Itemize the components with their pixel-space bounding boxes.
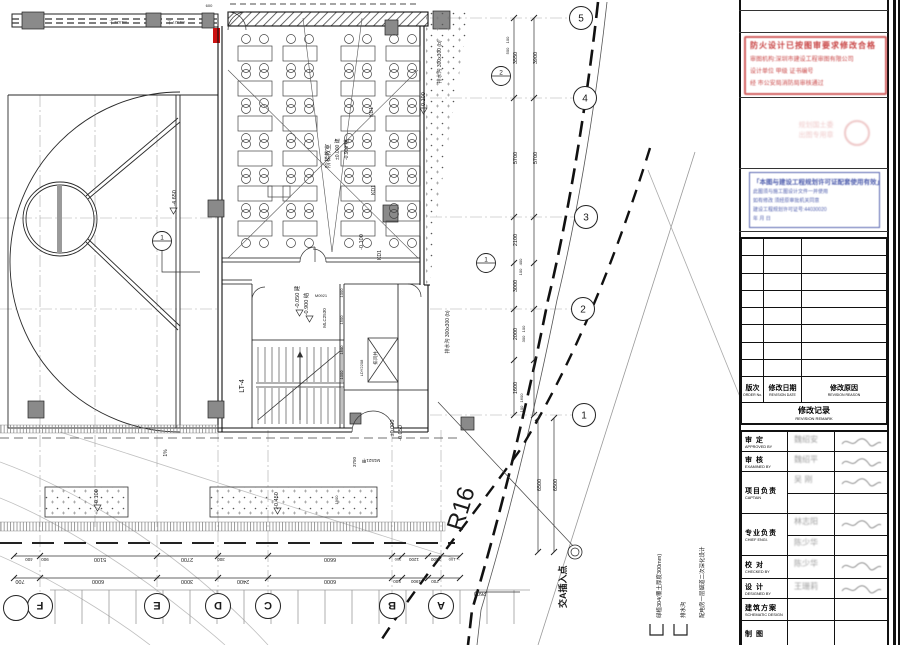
dim-label: MLC2530 [322,308,327,328]
approval-name-cell: 陈少华 [788,556,835,578]
sheet-border-outer [893,0,896,645]
desk [238,186,272,201]
chair [408,70,417,79]
stamp-line: 年 月 日 [753,215,876,222]
approval-role: 审 核EXAMINED BY [742,452,788,471]
role-en: SCHEMATIC DESIGN [745,613,787,617]
dim-label: 6500 [537,479,543,491]
dim-label: 2100 [513,234,519,246]
grid-number: 4 [582,94,588,105]
dim-label: -0.050 建 [293,285,301,308]
dim-label: 700 [431,579,439,584]
dim-label: 1500 [339,315,344,325]
chair [363,35,372,44]
approval-row: 专业负责CHIEF ENGI.林志阳陈少华 [742,514,887,556]
chair [345,239,354,248]
stamp-line: 设计单位 甲级 证书编号 [750,66,881,75]
role-en: CHECKED BY [745,570,787,574]
dim-label: 5700 [513,152,519,164]
role-en: EXAMINED BY [745,465,787,469]
role-en: APPROVED BY [745,445,787,449]
role-cn: 建筑方案 [745,603,787,613]
legend-symbol [674,624,687,635]
desk [386,186,420,201]
dim-label: 排风井 [372,351,379,365]
chair [242,70,251,79]
grid-number: 3 [583,213,589,224]
chair [390,239,399,248]
detail-number: 1 [160,235,164,242]
handwritten-name [788,621,834,623]
dim-label: 2600 [474,590,486,596]
role-cn: 项目负责 [745,486,787,496]
dim-label: 1200 [408,557,419,562]
grid-number: 5 [578,14,584,25]
desk [283,116,317,131]
role-cn: 制 图 [745,629,787,639]
road-name: R16 [442,484,481,534]
dim-label: 100 [521,325,526,332]
dim-label: 1000 [339,370,344,380]
chair [408,239,417,248]
dim-label: 3900 [533,52,539,64]
approval-row: 制 图 [742,621,887,645]
revision-footer: 修改记录 REVISION REMARK [742,403,886,423]
detail-number: 2 [499,70,503,77]
dim-label: KD1 [369,107,375,117]
desk [386,221,420,236]
desk [386,116,420,131]
dim-label: 600 [206,3,213,8]
chair [260,35,269,44]
approval-signature-cell [835,579,887,598]
dim-label: 500 [505,47,510,54]
detail-leader [162,250,200,272]
role-cn: 专业负责 [745,528,787,538]
revision-row [742,256,886,273]
handwritten-name [788,493,834,495]
rev-col3-cn: 修改原因 [830,383,858,393]
chair [345,70,354,79]
dim-label: 100 [518,268,523,275]
chair [363,175,372,184]
architectural-drawing-sheet: { "plan": { "room": { "name": "阶梯教室", "e… [0,0,900,645]
dim-label: 1600 [513,382,519,394]
dim-label: 1600 [519,393,524,403]
dim-label: 300 [394,557,401,562]
faint-seal-stamp: 规划国土委 出图专用章 [748,102,884,164]
revision-empty-rows [742,239,886,377]
approval-name-cell: 魏绍平 [788,452,835,471]
desk [238,221,272,236]
role-cn: 审 定 [745,435,787,445]
desk [386,46,420,61]
approval-name-cell: 吴 刚 [788,472,835,513]
dim-label: 6600 [324,556,336,562]
dim-label: -0.450 [274,492,280,508]
chair [242,35,251,44]
detail-number: 1 [484,257,488,264]
chair [260,140,269,149]
desk [238,81,272,96]
desk [341,81,375,96]
desk [238,151,272,166]
approval-role: 专业负责CHIEF ENGI. [742,514,788,555]
dim-label: 400 [25,557,33,562]
approval-row: 建筑方案SCHEMATIC DESIGN [742,599,887,621]
dim-label: M0921 [315,293,328,298]
chair [363,70,372,79]
chair [408,35,417,44]
role-cn: 审 核 [745,455,787,465]
approval-role: 设 计DESIGNED BY [742,579,788,598]
chair [287,35,296,44]
rev-col2-cn: 修改日期 [769,383,797,393]
chair [287,239,296,248]
chair [408,140,417,149]
approval-role: 建筑方案SCHEMATIC DESIGN [742,599,788,620]
dim-label: M1524 上 [109,20,126,26]
approval-signature-cell [835,599,887,620]
revision-table: 版次 ORDER No. 修改日期 REVISION DATE 修改原因 REV… [740,237,888,425]
chair [408,210,417,219]
legend-label: 配电房一层烟道二次深化设计 [698,546,706,618]
dim-label: 500 [393,579,401,584]
top-wall [12,12,220,43]
chair [287,70,296,79]
chair [408,175,417,184]
dim-label: -0.100 [421,92,427,108]
dim-label: 3000 [513,280,519,292]
dim-label: M1521甲 [362,457,380,463]
dim-label: 1900 [334,495,339,505]
approval-role: 审 定APPROVED BY [742,432,788,451]
rev-col2-en: REVISION DATE [769,393,796,397]
stair-extras [256,338,398,420]
grid-letter: C [264,599,272,611]
approval-name-cell [788,599,835,620]
dim-label: -0.900 结 [302,292,310,315]
handwritten-name: 吴 刚 [788,472,834,485]
dim-label: KD1 [371,185,377,195]
handwritten-name: 王珊莉 [788,579,834,592]
dim-label: 300 [521,335,526,342]
dim-label: 排水沟 300x300 (b) [444,310,451,353]
revision-row [742,360,886,377]
chair [305,70,314,79]
chair [305,175,314,184]
approval-row: 校 对CHECKED BY陈少华 [742,556,887,579]
chair [260,175,269,184]
approval-row: 设 计DESIGNED BY王珊莉 [742,579,887,599]
chair [390,70,399,79]
desk [341,116,375,131]
handwritten-name: 陈少华 [788,535,834,548]
panel-rule-3 [739,97,888,98]
approval-name-cell: 魏绍安 [788,432,835,451]
approval-name-cell: 王珊莉 [788,579,835,598]
dim-label: 2500 [430,557,441,562]
dim-label: 3550 [513,52,519,64]
room-name: 阶梯教室 [324,144,332,168]
legend-symbol [650,624,663,635]
chair [287,105,296,114]
revision-row [742,239,886,256]
dim-label: 3750 [352,456,357,467]
grid-bubble-letter [4,596,29,621]
dim-label: 2400 [237,578,249,584]
handwritten-name: 魏绍平 [788,452,834,465]
dim-label: 6000 [92,578,104,584]
role-cn: 校 对 [745,560,787,570]
revision-header: 版次 ORDER No. 修改日期 REVISION DATE 修改原因 REV… [742,377,886,403]
approval-role: 校 对CHECKED BY [742,556,788,578]
chair [390,35,399,44]
panel-rule-5 [739,231,888,232]
chair [242,105,251,114]
grid-letter: D [214,599,222,611]
dim-label: -0.100 [359,234,365,250]
dim-label: 5100 [94,556,106,562]
room-elev-struct: -0.900 结 [343,139,350,160]
chair [345,210,354,219]
handwritten-name [788,599,834,601]
legend-label: 排水沟 [679,601,687,618]
desk [238,46,272,61]
approval-signature-cell [835,556,887,578]
dim-label: 900 [41,557,49,562]
planning-permit-stamp: 「本图与建设工程规划许可证配套使用有效」 此图须与施工图设计文件一并使用 如有修… [749,172,880,228]
rev-footer-en: REVISION REMARK [795,416,832,421]
insertion-label: 交A插入点 [557,566,568,609]
dim-label: 6000 [324,578,336,584]
panel-rule-1 [739,10,888,11]
grid-number: 1 [581,411,587,422]
dim-label: 2700 [181,556,193,562]
chair [287,175,296,184]
sidewalks-planters [0,425,460,543]
dim-label: 排水沟 300x300 (b) [436,40,443,83]
dim-label: 6500 [553,479,559,491]
chair [345,35,354,44]
chair [390,175,399,184]
approval-signature-cell [835,452,887,471]
desk [283,46,317,61]
approval-signature-cell [835,472,887,513]
approval-name-cell: 林志阳陈少华 [788,514,835,555]
dim-label: 1000 [339,288,344,298]
grid-letter: E [153,599,160,611]
chair [390,105,399,114]
chair [390,140,399,149]
teacher-desk [268,186,290,197]
rev-col1-en: ORDER No. [743,393,762,397]
fence-ticks [50,590,530,624]
elevation-marker [306,316,313,322]
desk [386,81,420,96]
desk [238,116,272,131]
dim-label: 3000 [181,578,193,584]
desk [386,151,420,166]
room-elev-arch: ±0.000 建 [334,138,341,160]
stamp-line: 防火设计已按图审要求修改合格 [750,40,881,51]
dim-label: 400 [518,258,523,265]
stamp-line: 建设工程规划许可证号:44030020 [753,206,876,213]
dim-label: LT-4 [239,379,246,393]
dim-label: 700 [15,578,24,584]
legend-label: 绿植304(覆土厚度300mm) [655,554,663,618]
revision-row [742,274,886,291]
sheet-border-edge [898,0,900,645]
approval-signature-cell [835,621,887,645]
dim-label: 100 [505,36,510,43]
chair [260,239,269,248]
insertion-point: 交A插入点 [557,545,582,608]
dim-label: M1527 上 [167,20,184,26]
desk [341,221,375,236]
dim-label: 1500 [339,345,344,355]
dim-label: -4.650 [172,190,178,206]
chair [345,175,354,184]
revision-row [742,343,886,360]
desk [283,221,317,236]
grid-number: 2 [580,305,586,316]
chair [242,175,251,184]
elevation-marker [296,310,303,316]
chair [287,210,296,219]
dim-label: 5700 [533,152,539,164]
rev-col3-en: REVISION REASON [828,393,860,397]
paved-area [426,10,470,285]
dim-label: -0.100 [94,489,100,505]
dim-label: 1900 [410,579,421,584]
plan-legend: 绿植304(覆土厚度300mm)排水沟配电房一层烟道二次深化设计 [650,546,706,635]
handwritten-name: 林志阳 [788,514,834,527]
fire-review-stamp: 防火设计已按图审要求修改合格 审图机构:深圳市建设工程审图有限公司 设计单位 甲… [744,36,887,95]
revision-row [742,308,886,325]
role-en: CHIEF ENGI. [745,538,787,542]
dim-label: 300 [217,557,225,562]
title-block-panel: 防火设计已按图审要求修改合格 审图机构:深圳市建设工程审图有限公司 设计单位 甲… [735,0,900,645]
stamp-line: 经 市公安局消防局审核通过 [750,78,881,87]
dim-label: ±0.000 [390,420,396,437]
dim-label: KD1 [377,250,383,260]
rev-footer-cn: 修改记录 [798,405,830,416]
revision-row [742,325,886,342]
dim-label: 100 [448,557,455,562]
handwritten-name: 陈少华 [788,556,834,569]
room-label: 阶梯教室 ±0.000 建 -0.900 结 [324,138,350,168]
chair [305,239,314,248]
approval-role: 项目负责CAPTAIN [742,472,788,513]
grid-letter: A [437,599,445,611]
grid-letter: B [388,599,396,611]
red-marker [213,28,220,43]
approval-row: 审 定APPROVED BY魏绍安 [742,432,887,452]
basketball-court [8,92,218,432]
role-cn: 设 计 [745,582,787,592]
role-en: DESIGNED BY [745,592,787,596]
role-en: CAPTAIN [745,496,787,500]
approval-table: 审 定APPROVED BY魏绍安审 核EXAMINED BY魏绍平项目负责CA… [740,430,889,645]
dim-label: LDY2208 [359,359,364,376]
stamp-line: 审图机构:深圳市建设工程审图有限公司 [750,54,881,63]
chair [363,140,372,149]
dim-label: -0.050 [398,425,404,441]
chair [242,210,251,219]
panel-rule-2 [739,32,888,33]
handwritten-name: 魏绍安 [788,432,834,445]
dim-label: 100 [519,405,524,412]
dim-label: 1% [163,449,169,457]
chair [260,210,269,219]
approval-row: 项目负责CAPTAIN吴 刚 [742,472,887,514]
round-seal [844,120,870,146]
chair [305,210,314,219]
approval-role: 制 图 [742,621,788,645]
stamp-line: 如有修改 须经原审批机关同意 [753,197,876,204]
stamp-line: 此图须与施工图设计文件一并使用 [753,188,876,195]
stamp-line: 「本图与建设工程规划许可证配套使用有效」 [753,176,876,186]
approval-name-cell [788,621,835,645]
chair [242,140,251,149]
approval-signature-cell [835,514,887,555]
detail-markers: 211 [153,67,511,273]
chair [345,105,354,114]
chair [260,70,269,79]
grid-letter: F [36,599,43,611]
approval-signature-cell [835,432,887,451]
chair [408,105,417,114]
approval-row: 审 核EXAMINED BY魏绍平 [742,452,887,472]
panel-rule-4 [739,168,888,169]
rev-col1-cn: 版次 [746,383,760,393]
chair [305,105,314,114]
dim-label: 2000 [513,328,519,340]
chair [287,140,296,149]
revision-row [742,291,886,308]
